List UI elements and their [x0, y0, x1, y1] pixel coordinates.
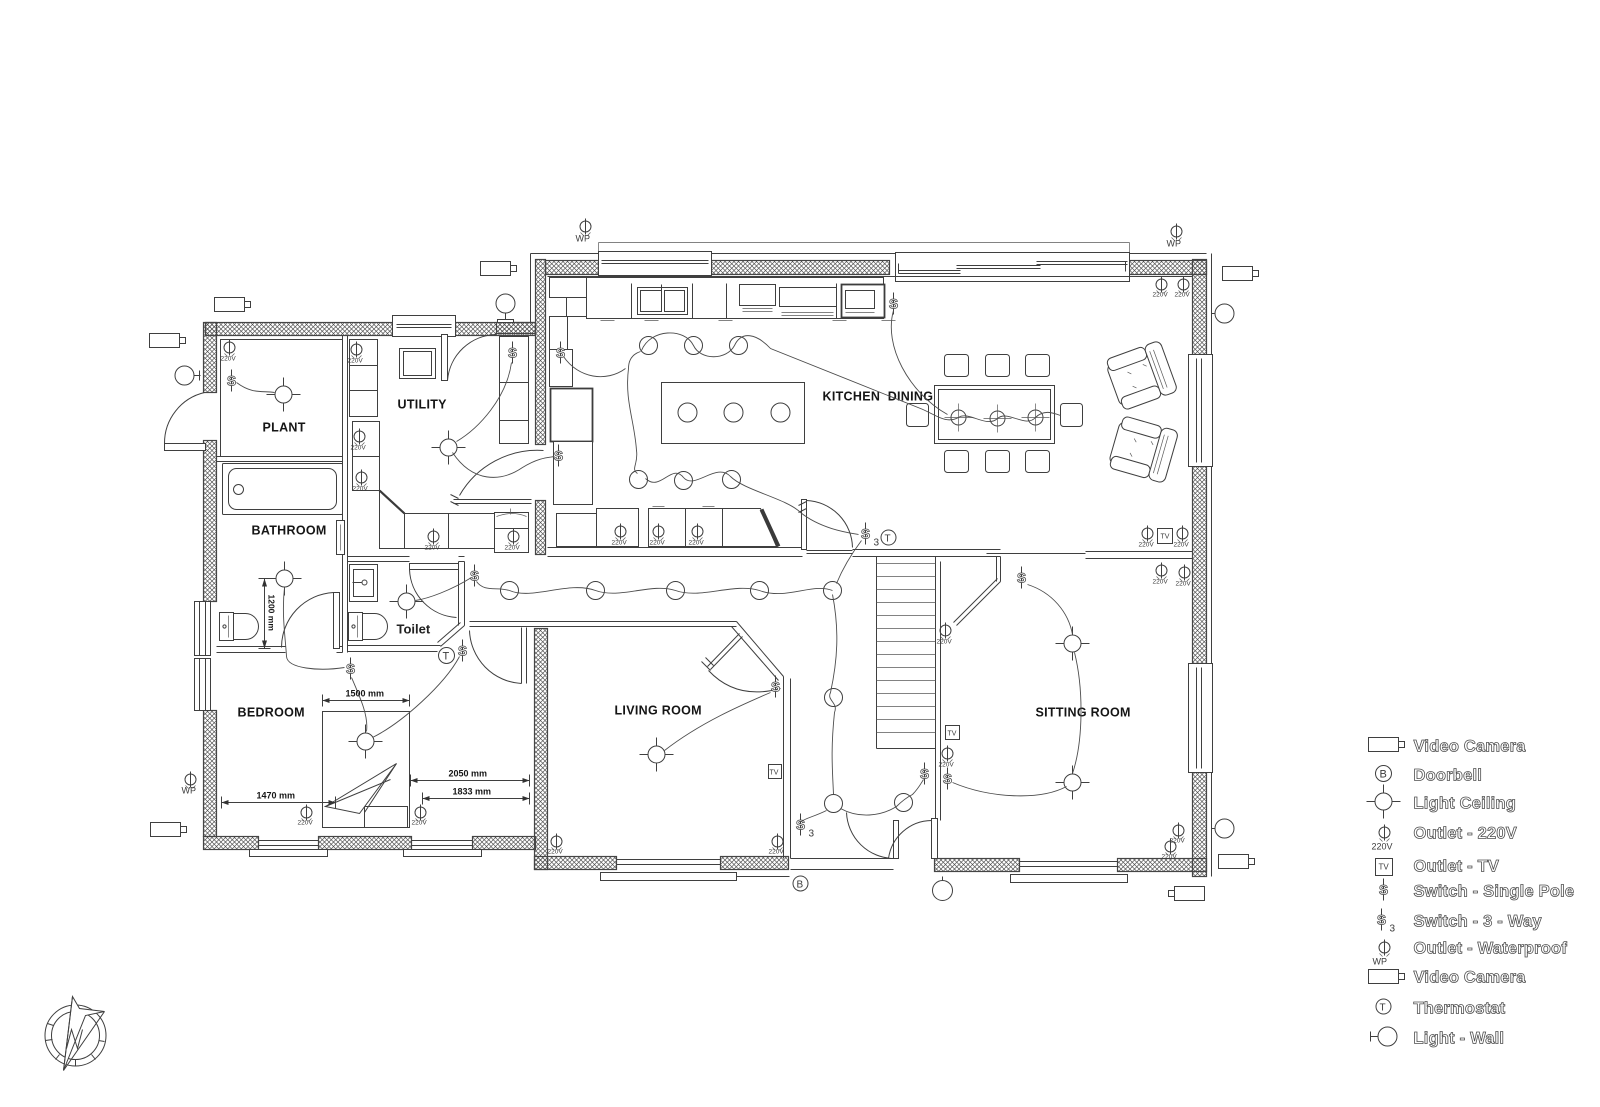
svg-text:2050 mm: 2050 mm [449, 769, 488, 779]
svg-text:220V: 220V [412, 820, 428, 827]
svg-text:Toilet: Toilet [397, 622, 431, 637]
svg-text:WP: WP [1373, 957, 1388, 967]
svg-text:Outlet - TV: Outlet - TV [1414, 858, 1500, 876]
svg-text:TV: TV [1379, 863, 1390, 872]
svg-text:BEDROOM: BEDROOM [238, 706, 305, 720]
svg-text:3: 3 [1390, 924, 1396, 935]
svg-text:B: B [797, 880, 804, 891]
svg-text:220V: 220V [548, 849, 564, 856]
svg-text:T: T [885, 534, 891, 545]
svg-text:WP: WP [182, 786, 197, 796]
svg-text:TV: TV [948, 731, 957, 738]
svg-text:Video Camera: Video Camera [1414, 969, 1527, 987]
svg-text:BATHROOM: BATHROOM [252, 524, 327, 538]
svg-text:220V: 220V [939, 762, 955, 769]
svg-text:UTILITY: UTILITY [398, 398, 448, 412]
svg-text:220V: 220V [1174, 542, 1190, 549]
svg-text:TV: TV [770, 770, 779, 777]
svg-text:Doorbell: Doorbell [1414, 767, 1483, 785]
svg-text:Switch - 3 - Way: Switch - 3 - Way [1414, 913, 1543, 931]
svg-text:SITTING ROOM: SITTING ROOM [1036, 706, 1131, 720]
svg-text:220V: 220V [1176, 581, 1192, 588]
svg-text:220V: 220V [1153, 579, 1169, 586]
svg-text:Thermostat: Thermostat [1414, 1000, 1506, 1018]
svg-text:220V: 220V [1372, 842, 1393, 852]
svg-text:3: 3 [809, 829, 815, 840]
svg-text:220V: 220V [505, 545, 521, 552]
svg-text:1833 mm: 1833 mm [453, 787, 492, 797]
svg-text:220V: 220V [1139, 542, 1155, 549]
svg-text:220V: 220V [1175, 292, 1191, 299]
svg-text:220V: 220V [348, 358, 364, 365]
svg-text:220V: 220V [221, 356, 237, 363]
svg-text:PLANT: PLANT [263, 421, 306, 435]
svg-text:Outlet - 220V: Outlet - 220V [1414, 825, 1517, 843]
svg-text:220V: 220V [353, 486, 369, 493]
svg-text:220V: 220V [298, 820, 314, 827]
svg-text:1200 mm: 1200 mm [267, 595, 277, 632]
svg-text:Video Camera: Video Camera [1414, 738, 1527, 756]
svg-text:220V: 220V [425, 545, 441, 552]
svg-text:220V: 220V [351, 445, 367, 452]
svg-text:220V: 220V [689, 540, 705, 547]
svg-text:Switch - Single Pole: Switch - Single Pole [1414, 883, 1575, 901]
svg-text:1470 mm: 1470 mm [257, 791, 296, 801]
svg-text:3: 3 [874, 538, 880, 549]
svg-text:LIVING ROOM: LIVING ROOM [615, 704, 702, 718]
svg-text:220V: 220V [612, 540, 628, 547]
svg-text:WP: WP [576, 234, 591, 244]
svg-text:1500 mm: 1500 mm [346, 689, 385, 699]
svg-text:220V: 220V [1153, 292, 1169, 299]
svg-text:Light - Wall: Light - Wall [1414, 1030, 1505, 1048]
svg-text:Outlet - Waterproof: Outlet - Waterproof [1414, 940, 1568, 958]
svg-text:220V: 220V [937, 639, 953, 646]
svg-text:T: T [443, 651, 450, 663]
svg-text:Light Ceiling: Light Ceiling [1414, 795, 1517, 813]
svg-text:220V: 220V [769, 849, 785, 856]
svg-text:TV: TV [1161, 534, 1170, 541]
svg-text:B: B [1380, 769, 1387, 781]
svg-text:WP: WP [1167, 239, 1182, 249]
svg-text:T: T [1380, 1003, 1386, 1014]
svg-text:220V: 220V [1162, 854, 1178, 861]
svg-text:220V: 220V [650, 540, 666, 547]
